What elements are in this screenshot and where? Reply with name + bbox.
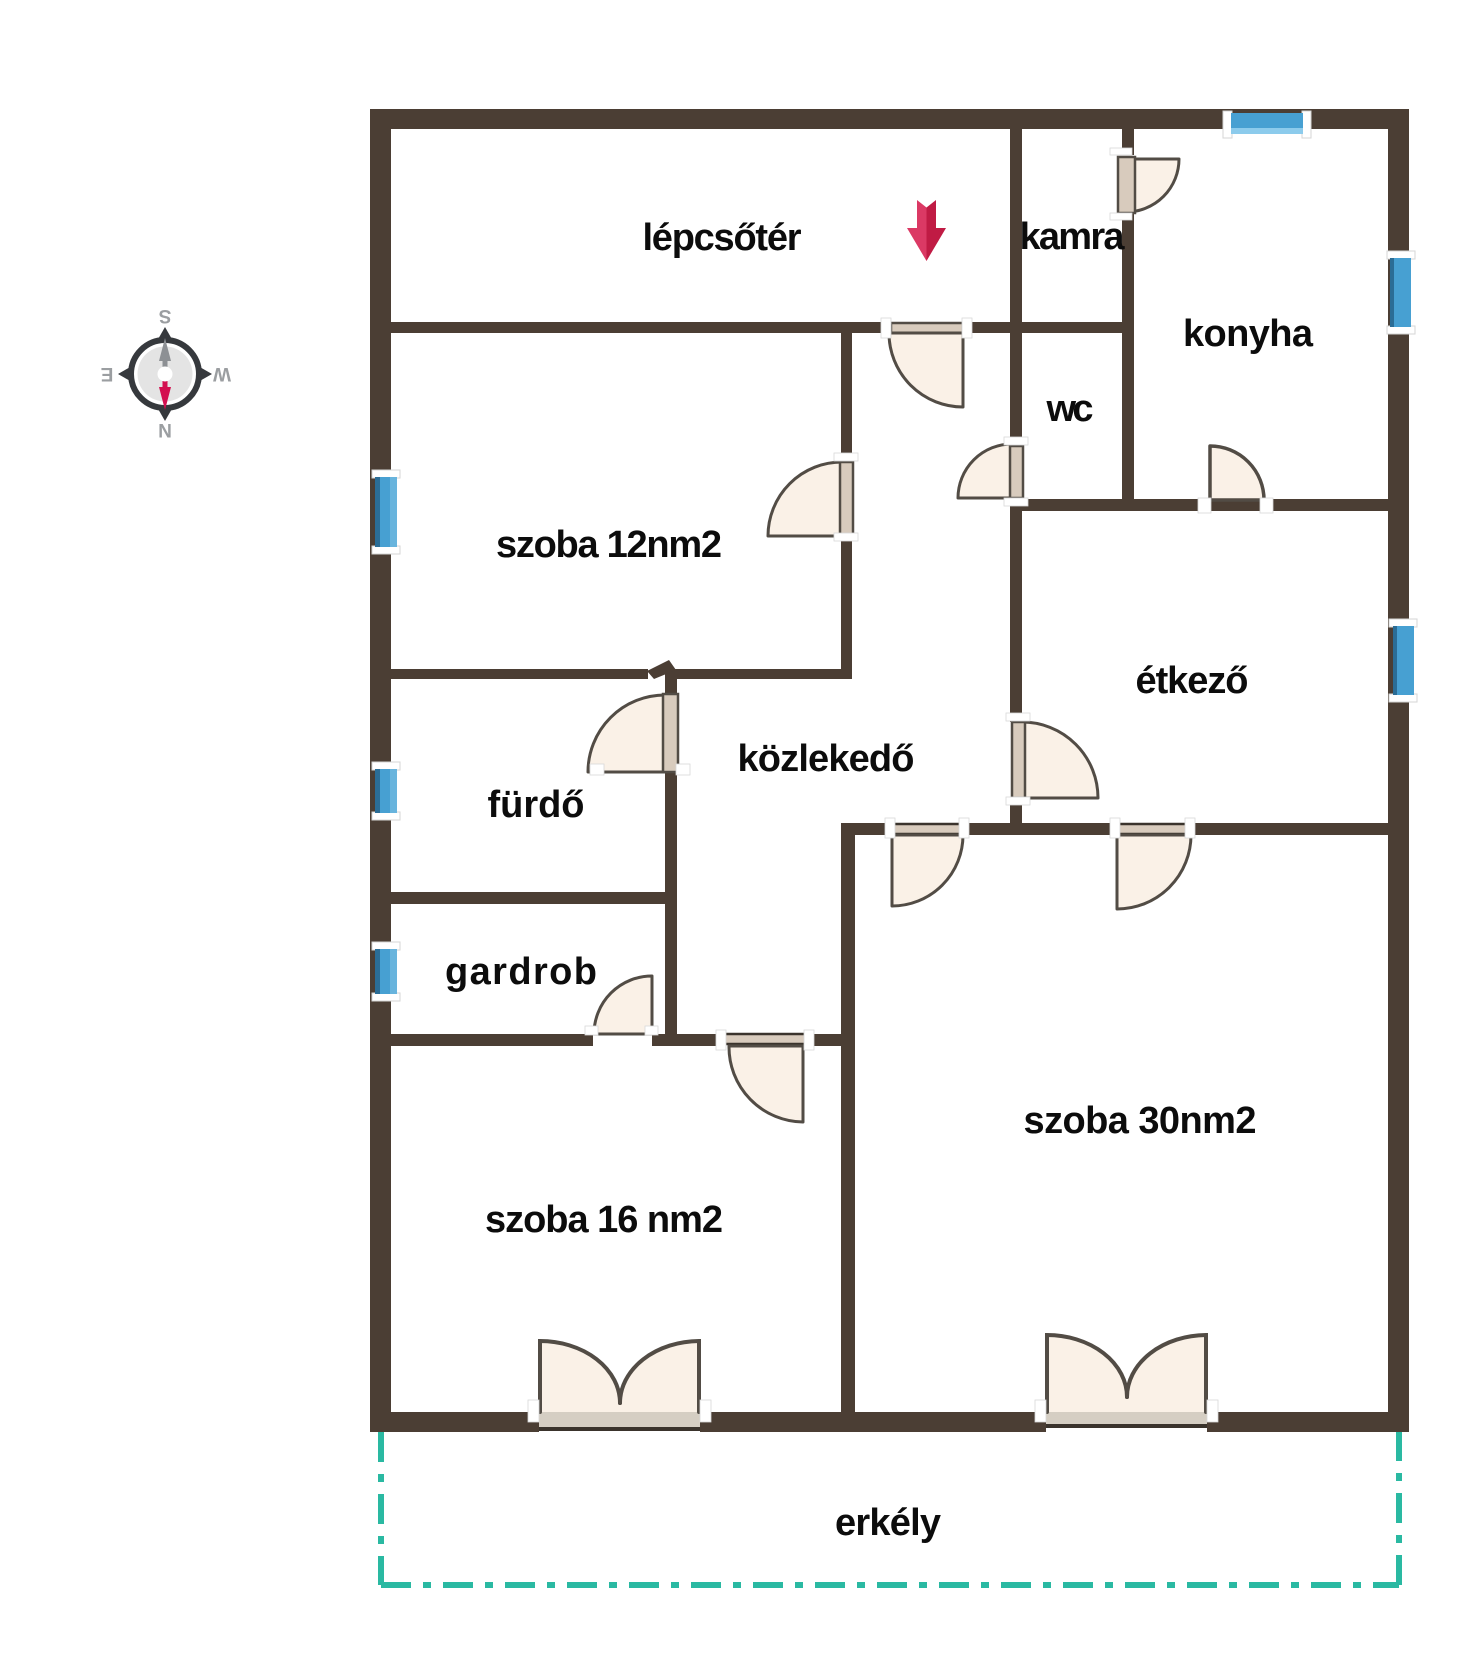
svg-text:N: N (158, 419, 172, 440)
svg-text:W: W (213, 363, 231, 384)
svg-text:közlekedő: közlekedő (738, 738, 915, 780)
svg-text:étkező: étkező (1136, 660, 1249, 702)
svg-text:wc: wc (1046, 388, 1094, 430)
svg-text:szoba 30nm2: szoba 30nm2 (1024, 1100, 1257, 1142)
svg-text:lépcsőtér: lépcsőtér (643, 217, 802, 259)
svg-text:konyha: konyha (1183, 313, 1314, 355)
svg-text:fürdő: fürdő (488, 784, 585, 826)
svg-text:kamra: kamra (1020, 216, 1126, 258)
svg-text:E: E (101, 363, 114, 384)
svg-text:szoba 16 nm2: szoba 16 nm2 (485, 1199, 723, 1241)
svg-text:S: S (159, 305, 172, 326)
svg-text:gardrob: gardrob (445, 951, 597, 993)
svg-text:szoba 12nm2: szoba 12nm2 (496, 524, 722, 566)
svg-text:erkély: erkély (835, 1502, 941, 1544)
